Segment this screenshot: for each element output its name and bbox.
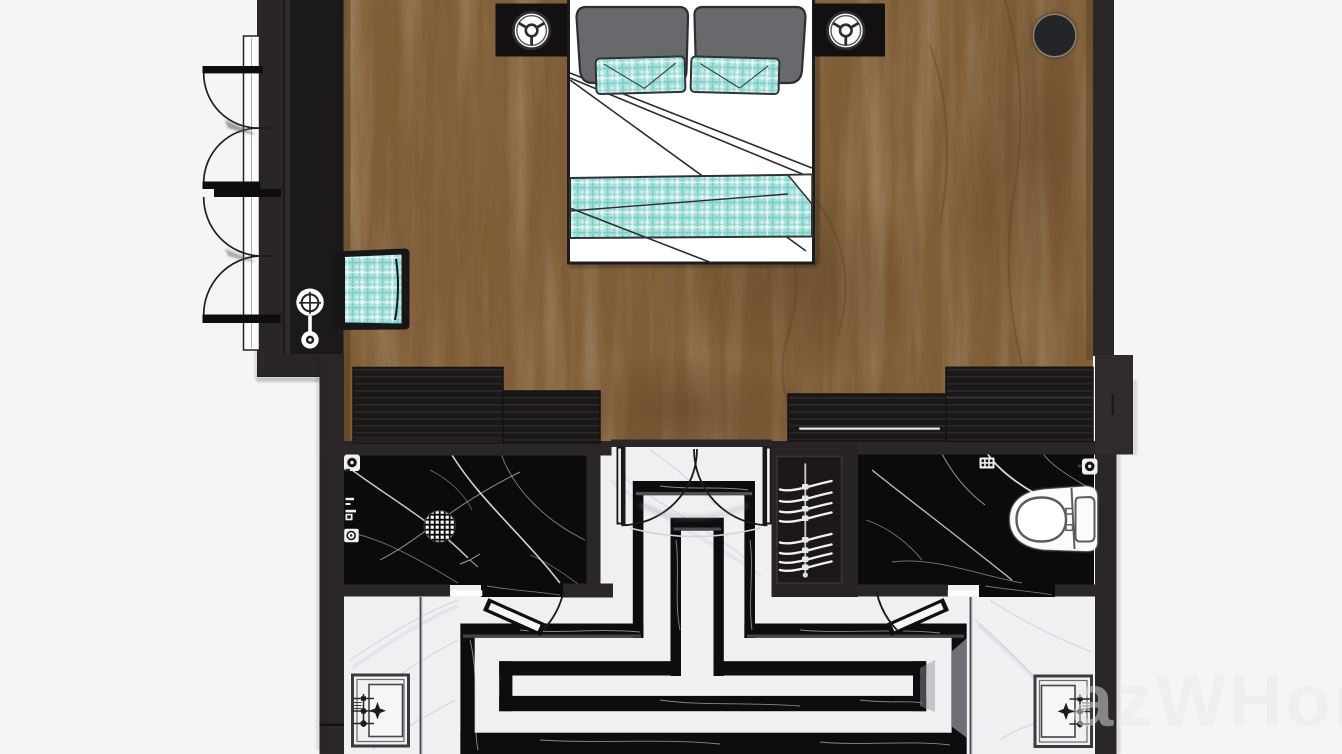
svg-text:azWHom: azWHom [1072, 659, 1342, 742]
